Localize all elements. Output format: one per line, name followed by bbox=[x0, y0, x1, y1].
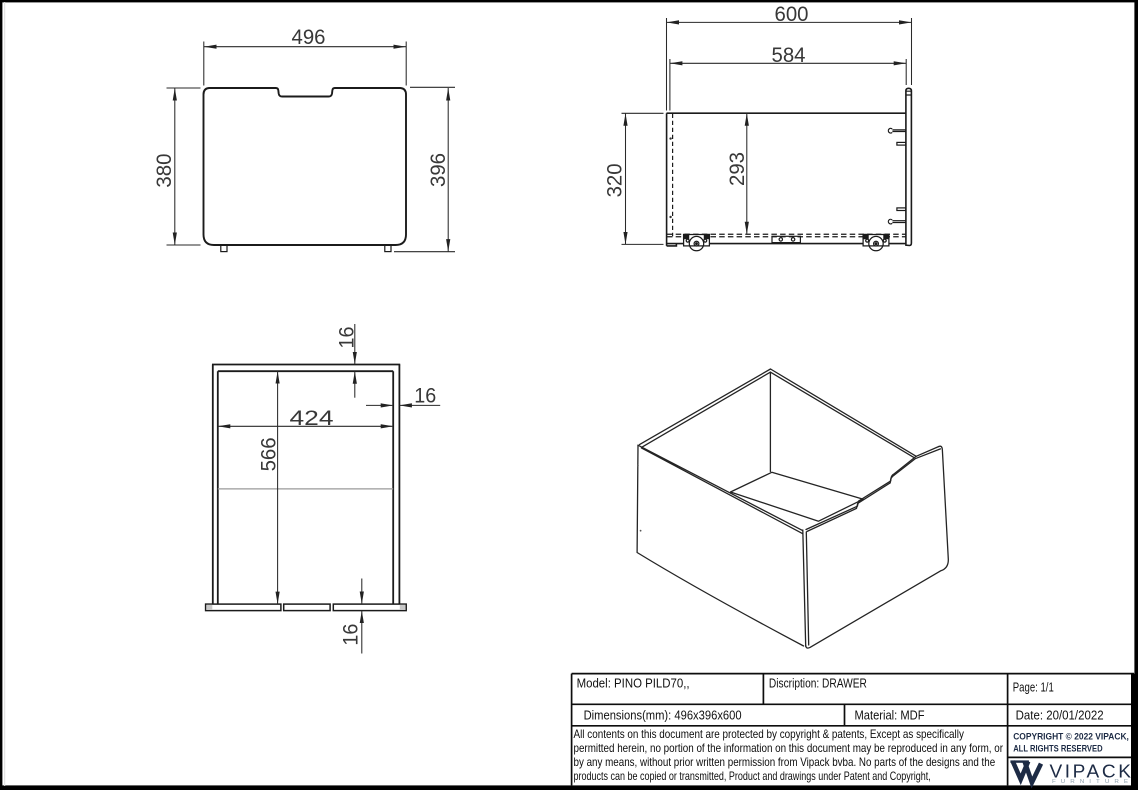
svg-text:496: 496 bbox=[292, 25, 326, 49]
svg-text:566: 566 bbox=[257, 437, 281, 471]
svg-text:Dimensions(mm): 496x396x600: Dimensions(mm): 496x396x600 bbox=[584, 708, 742, 723]
svg-text:Model: PINO PILD70,,: Model: PINO PILD70,, bbox=[577, 675, 690, 690]
svg-text:16: 16 bbox=[414, 384, 436, 408]
svg-text:ALL RIGHTS RESERVED: ALL RIGHTS RESERVED bbox=[1013, 743, 1103, 753]
svg-text:16: 16 bbox=[339, 624, 363, 646]
svg-text:320: 320 bbox=[603, 163, 627, 197]
svg-text:FURNITURE: FURNITURE bbox=[1052, 779, 1133, 785]
svg-text:COPYRIGHT © 2022 VIPACK,: COPYRIGHT © 2022 VIPACK, bbox=[1013, 732, 1129, 742]
svg-text:All contents on this document: All contents on this document are protec… bbox=[574, 727, 964, 741]
svg-text:Material: MDF: Material: MDF bbox=[855, 708, 925, 723]
svg-text:600: 600 bbox=[775, 2, 809, 26]
svg-text:Page: 1/1: Page: 1/1 bbox=[1013, 680, 1054, 695]
svg-text:584: 584 bbox=[772, 43, 806, 67]
svg-text:products can be copied or tran: products can be copied or transmitted, P… bbox=[574, 769, 931, 783]
svg-text:by any means, without prior wr: by any means, without prior written perm… bbox=[574, 755, 996, 769]
svg-text:424: 424 bbox=[290, 406, 334, 430]
svg-text:permitted herein, no portion o: permitted herein, no portion of the info… bbox=[574, 741, 1004, 755]
svg-text:380: 380 bbox=[152, 154, 176, 188]
svg-text:16: 16 bbox=[335, 326, 359, 348]
svg-text:293: 293 bbox=[725, 152, 749, 186]
svg-text:Date: 20/01/2022: Date: 20/01/2022 bbox=[1016, 708, 1104, 723]
svg-text:396: 396 bbox=[426, 153, 450, 187]
svg-text:Discription: DRAWER: Discription: DRAWER bbox=[769, 675, 867, 690]
